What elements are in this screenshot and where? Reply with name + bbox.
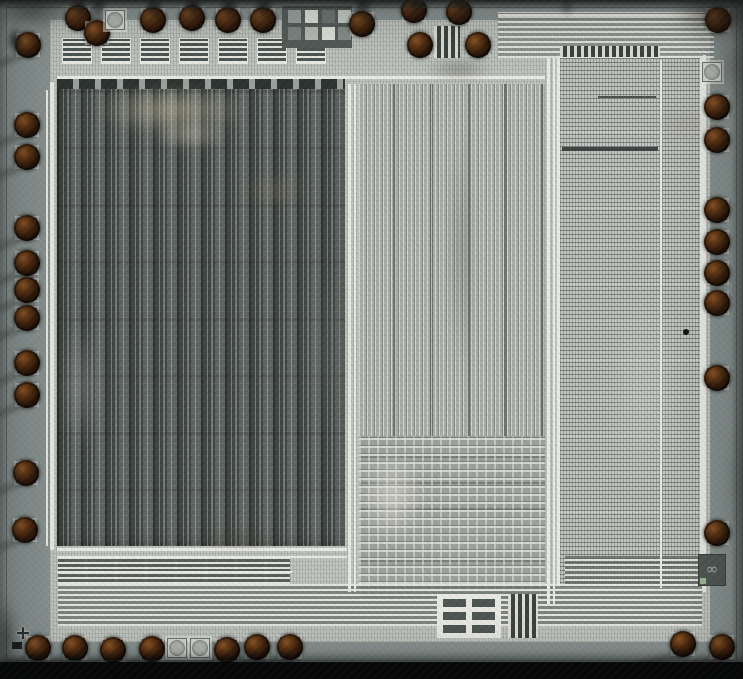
die-outline: [6, 7, 737, 661]
die-photo: ∞+: [0, 0, 743, 679]
photo-bottom-black-edge: [0, 662, 743, 679]
